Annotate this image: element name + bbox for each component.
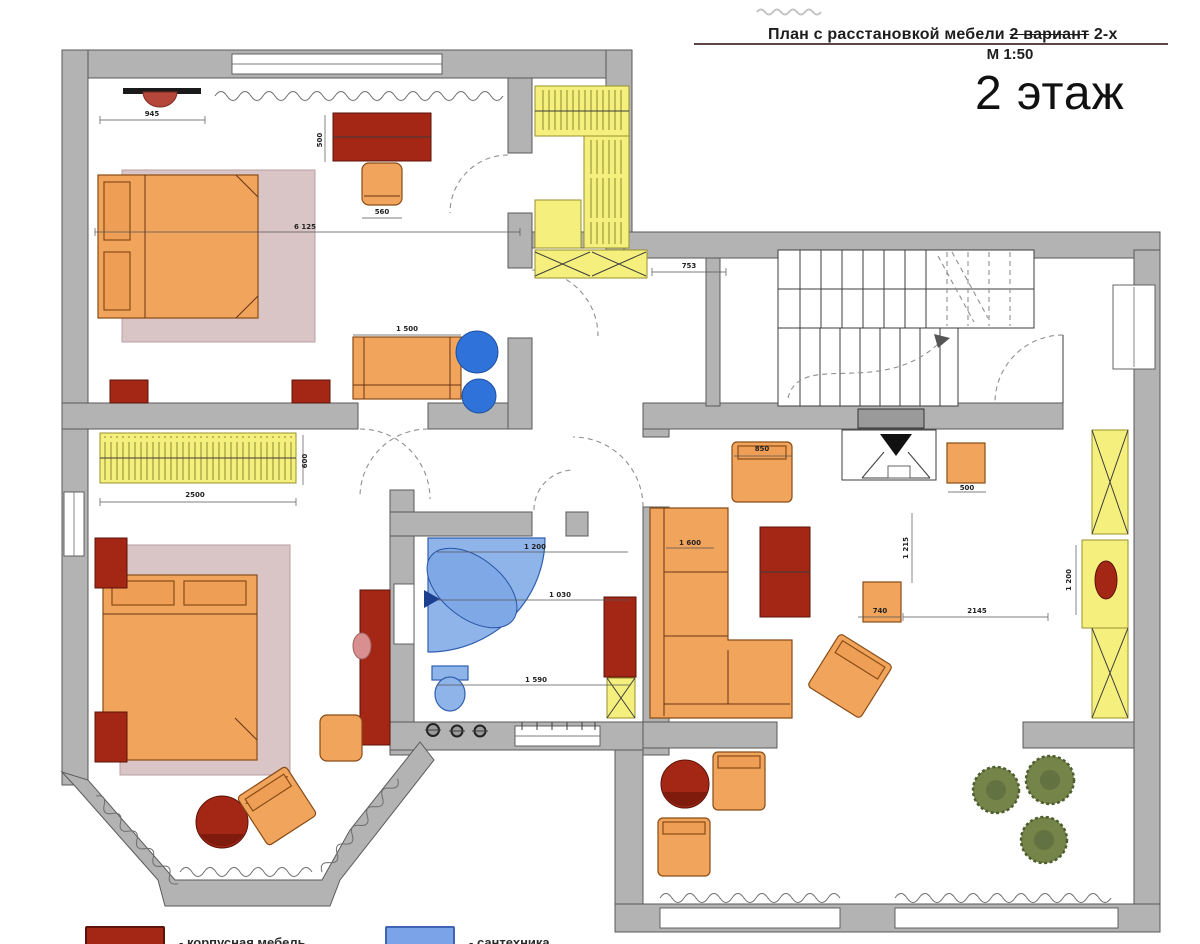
curtain-bay-bottom [180,868,312,877]
wall-stair-parapet [706,258,720,406]
nightstand [292,380,330,403]
dimension-label: 740 [873,607,888,615]
wall-bath-top-stub [566,512,588,536]
nightstand [110,380,148,403]
pouf-blue-1 [456,331,498,373]
dimension-label: 1 600 [679,539,701,547]
door-arc-living [573,437,643,507]
plants [973,756,1074,863]
floor-plan-drawing: 9456 1255005601 50075325006001 2001 0301… [0,0,1200,944]
door-arc-bathroom [534,470,574,510]
legend-label-sanitary: - сантехника [469,926,550,944]
dimension-label: 500 [960,484,975,492]
shoe-cabinet-hall [535,250,647,278]
nightstand [95,538,127,588]
dimension-label: 1 200 [1065,569,1073,591]
dimension-label: 1 215 [902,537,910,559]
floor-plan-page: 9456 1255005601 50075325006001 2001 0301… [0,0,1200,944]
wall-bedroom-divider-a [62,403,358,429]
plumbing-valves [425,724,488,737]
staircase [778,250,1034,406]
sink-bowl [353,633,371,659]
door-arc-bedroom1-hall [532,270,598,336]
wall-bedroom1-right-3 [508,338,532,429]
wall-bath-top [390,512,532,536]
desk-chair-bedroom1 [362,163,402,205]
chair-back [663,822,705,834]
wall-bedroom1-right-2 [508,213,532,268]
pillow [104,252,130,310]
window-balcony-1 [660,908,840,928]
door-arc-stair-hall [995,335,1063,403]
legend-swatch-case-furniture [85,926,165,944]
bedroom1-furniture [98,88,498,413]
pouf-blue-2 [462,379,496,413]
desk-chair-bedroom2 [320,715,362,761]
dimension-label: 1 200 [524,543,546,551]
dimension-label: 560 [375,208,390,216]
chair-back [718,756,760,768]
door-arc-bedroom2-a [360,429,430,499]
legend: - корпусная мебель - сантехника [0,926,1200,944]
dimension-label: 1 030 [549,591,571,599]
door-arc-bedroom2-b [360,429,428,497]
table-shade [663,792,707,806]
wardrobe-living-right [1082,430,1128,718]
scale-label: М 1:50 [930,46,1090,63]
title-prefix: План с расстановкой мебели [768,26,1010,43]
dimension-label: 500 [316,133,324,148]
toilet-bowl [435,677,465,711]
cabinet-hall [604,597,636,677]
tv-bracket [143,92,177,107]
legend-item-case-furniture: - корпусная мебель [85,926,306,944]
title-suffix: 2-х [1089,26,1117,43]
wardrobe-closet-left [535,200,581,248]
decor-bowl [1095,561,1117,599]
curtain-balcony-2 [895,894,1111,903]
side-table-mid [863,582,901,622]
wall-living-top [643,403,1063,429]
wall-balcony-top-right [1023,722,1134,748]
wall-balcony-top-left [643,722,777,748]
dimension-label: 753 [682,262,697,270]
dimension-label: 1 500 [396,325,418,333]
side-table-top [947,443,985,483]
living-room-furniture [650,409,1128,719]
pillow [184,581,246,605]
pillow [104,182,130,240]
curtain-bedroom1 [215,92,503,101]
dimension-label: 6 125 [294,223,316,231]
page-title: План с расстановкой мебели 2 вариант 2-х [768,26,1200,44]
bathroom [394,532,636,736]
title-struck-text: 2 вариант [1010,26,1090,43]
floor-label: 2 этаж [975,66,1125,121]
legend-swatch-sanitary [385,926,455,944]
dimension-label: 2500 [185,491,205,499]
sofa-bedroom1 [353,337,461,399]
wall-living-left-a [643,429,669,437]
dimension-label: 600 [301,454,309,469]
bedroom2-furniture [95,433,390,848]
door-arc-closet [450,155,508,213]
pouf-red-shade [200,834,244,846]
dimension-label: 945 [145,110,160,118]
dimension-label: 2145 [967,607,987,615]
cabinet-bedroom2 [360,590,390,745]
dimension-label: 850 [755,445,770,453]
wall-bedroom1-right-1 [508,78,532,153]
nightstand [95,712,127,762]
dimension-label: 1 590 [525,676,547,684]
curtain-balcony-1 [660,894,840,903]
watermark-scribble [757,10,821,15]
legend-label-case-furniture: - корпусная мебель [179,926,306,944]
balcony-furniture [658,752,1074,876]
window-balcony-2 [895,908,1118,928]
legend-item-sanitary: - сантехника [385,926,550,944]
bath-vanity [394,584,414,644]
